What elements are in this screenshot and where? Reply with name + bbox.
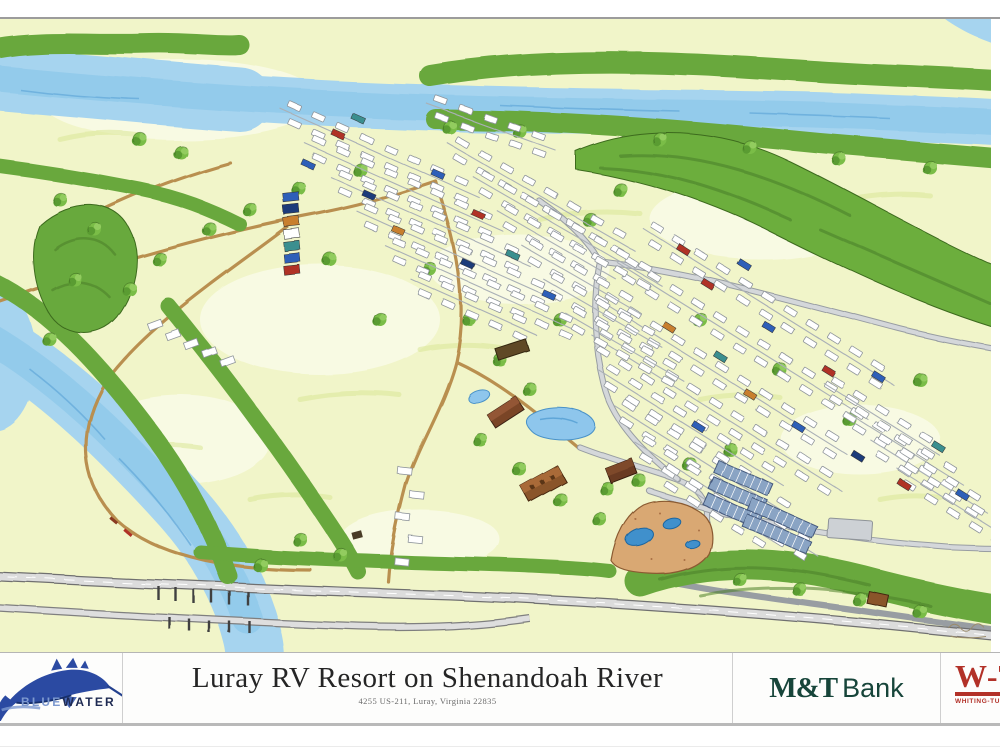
mt-bank-bank: Bank <box>842 673 904 703</box>
map-frame <box>0 17 1000 654</box>
mt-bank-logo: M&TBank <box>732 653 940 723</box>
scan-edge-line <box>0 746 1000 747</box>
resort-map-illustration <box>0 19 1000 654</box>
map-footer-band: BLUEWATER Luray RV Resort on Shenandoah … <box>0 652 1000 726</box>
whiting-turner-monogram: W-T <box>955 661 1000 691</box>
bluewater-wordmark: BLUEWATER <box>21 695 116 709</box>
whiting-turner-logo: W-T WHITING-TURNER <box>940 653 1000 723</box>
whiting-turner-block: W-T WHITING-TURNER <box>955 661 1000 705</box>
resort-address: 4255 US-211, Luray, Virginia 22835 <box>123 696 732 706</box>
whiting-turner-caption: WHITING-TURNER <box>955 698 1000 705</box>
title-block: Luray RV Resort on Shenandoah River 4255… <box>122 653 732 723</box>
scan-margin-right <box>991 19 1000 654</box>
bluewater-word-water: WATER <box>62 695 115 709</box>
mt-bank-mt: M&T <box>769 672 837 704</box>
marlin-icon <box>0 655 122 721</box>
bluewater-word-blue: BLUE <box>21 695 62 709</box>
parking-lot <box>827 518 872 541</box>
bluewater-logo: BLUEWATER <box>0 653 122 723</box>
mt-bank-wordmark: M&TBank <box>769 672 903 705</box>
scanned-resort-map-page: BLUEWATER Luray RV Resort on Shenandoah … <box>0 0 1000 750</box>
resort-title: Luray RV Resort on Shenandoah River <box>123 662 732 695</box>
